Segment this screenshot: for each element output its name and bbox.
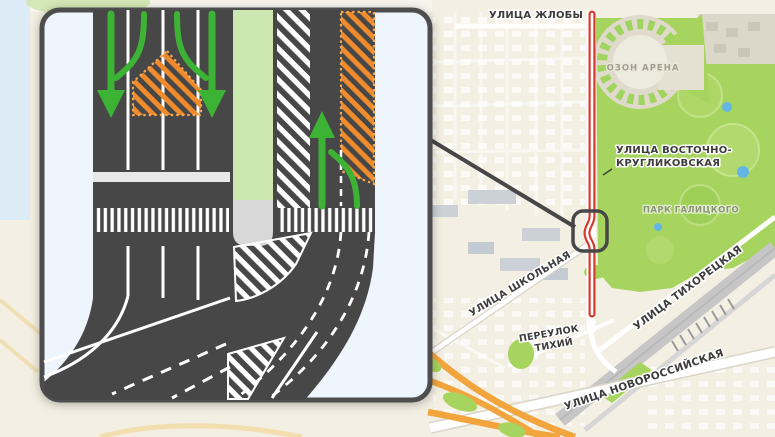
label-ozon-arena: ОЗОН АРЕНА	[607, 64, 680, 74]
inset-diagram	[42, 8, 430, 402]
inset-content	[44, 8, 375, 402]
scheme-map-graphic: УЛИЦА ЖЛОБЫ ОЗОН АРЕНА УЛИЦА ВОСТОЧНО- К…	[0, 0, 775, 437]
pond	[722, 102, 732, 112]
pond	[737, 166, 749, 178]
road-scheme-infographic: УЛИЦА ЖЛОБЫ ОЗОН АРЕНА УЛИЦА ВОСТОЧНО- К…	[0, 0, 775, 437]
painted-island-strip	[277, 8, 310, 208]
label-ulitsa-vostochno-line2: КРУГЛИКОВСКАЯ	[616, 158, 720, 169]
median-green-strip	[233, 8, 273, 202]
label-ulitsa-zhloby: УЛИЦА ЖЛОБЫ	[489, 10, 583, 21]
label-ulitsa-vostochno-line1: УЛИЦА ВОСТОЧНО-	[616, 145, 732, 156]
closed-lane-zone-right	[341, 12, 374, 184]
crosswalk-left	[96, 208, 229, 232]
stop-line	[93, 172, 230, 182]
median-island	[233, 200, 273, 246]
water-strip	[0, 0, 30, 220]
pond	[654, 223, 662, 231]
crosswalk-right	[278, 208, 374, 232]
built-area-topright	[698, 14, 775, 64]
label-park-galitskogo: ПАРК ГАЛИЦКОГО	[643, 206, 739, 216]
